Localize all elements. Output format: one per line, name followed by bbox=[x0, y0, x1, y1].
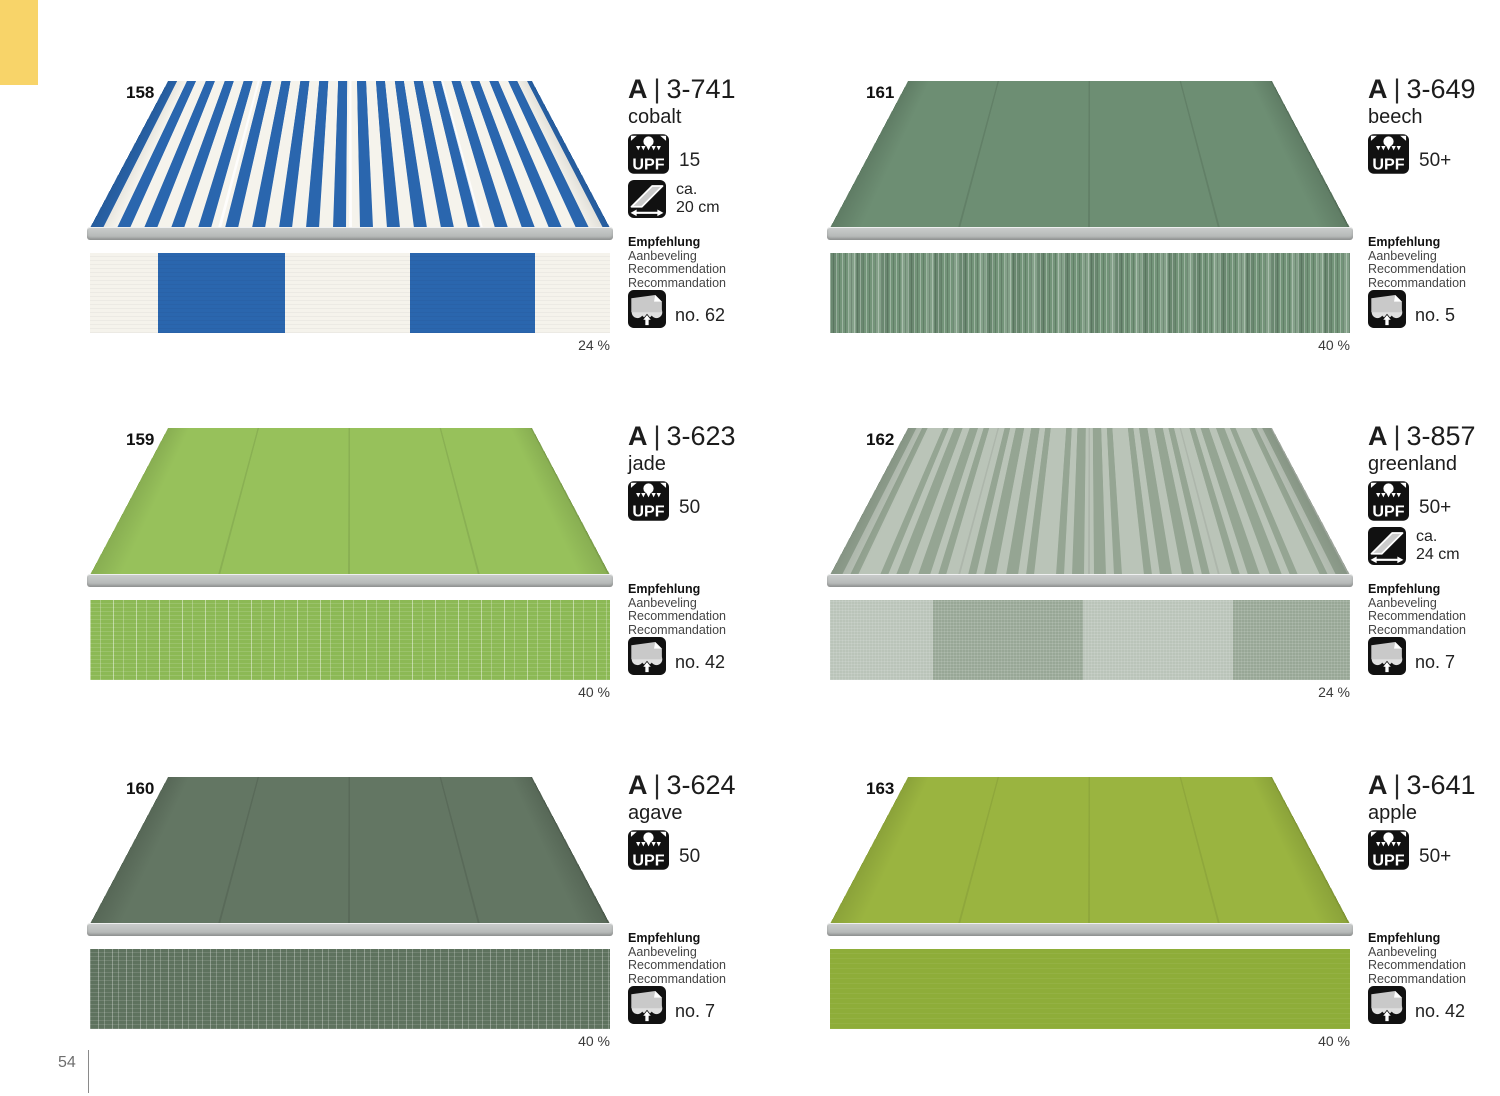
upf-sun-icon bbox=[628, 134, 669, 174]
fabric-swatch bbox=[90, 949, 610, 1029]
awning-recommendation-icon bbox=[628, 290, 666, 328]
code-separator: | bbox=[1394, 421, 1401, 451]
recommendation-line: Recommandation bbox=[628, 624, 726, 638]
color-name: agave bbox=[628, 802, 683, 825]
product-number: 158 bbox=[126, 83, 154, 103]
color-name: apple bbox=[1368, 802, 1417, 825]
awning-image bbox=[90, 80, 610, 228]
recommendation-line: Aanbeveling bbox=[628, 250, 726, 264]
recommendation-number: no. 62 bbox=[675, 305, 725, 326]
awning-image bbox=[90, 776, 610, 924]
code-prefix: A bbox=[628, 770, 648, 800]
recommendation-number: no. 42 bbox=[1415, 1001, 1465, 1022]
awning-recommendation-icon bbox=[628, 637, 666, 675]
upf-value: 15 bbox=[679, 150, 700, 172]
upf-value: 50 bbox=[679, 497, 700, 519]
width-approx-label: ca. bbox=[676, 181, 720, 199]
recommendation-line: Aanbeveling bbox=[1368, 250, 1466, 264]
product-card: 158 24 % A|3-741 cobalt 15 ca. 20 cm Emp… bbox=[90, 80, 790, 390]
code-prefix: A bbox=[1368, 770, 1388, 800]
code-prefix: A bbox=[1368, 421, 1388, 451]
awning-front-bar bbox=[87, 923, 613, 936]
valance-width-icon bbox=[628, 180, 666, 218]
recommendation-block: Empfehlung Aanbeveling Recommendation Re… bbox=[1368, 236, 1466, 290]
awning-front-bar bbox=[827, 227, 1353, 240]
code-prefix: A bbox=[628, 74, 648, 104]
product-code: A|3-857 bbox=[1368, 421, 1476, 451]
recommendation-heading: Empfehlung bbox=[628, 236, 726, 250]
product-number: 160 bbox=[126, 779, 154, 799]
code-separator: | bbox=[654, 770, 661, 800]
product-card: 159 40 % A|3-623 jade 50 Empfehlung Aanb… bbox=[90, 427, 790, 737]
awning-fabric bbox=[90, 428, 610, 575]
code-separator: | bbox=[654, 421, 661, 451]
code-prefix: A bbox=[1368, 74, 1388, 104]
recommendation-block: Empfehlung Aanbeveling Recommendation Re… bbox=[628, 932, 726, 986]
fabric-swatch bbox=[830, 949, 1350, 1029]
color-name: jade bbox=[628, 453, 666, 476]
awning-image bbox=[830, 776, 1350, 924]
page-number-divider bbox=[88, 1050, 89, 1093]
product-number: 162 bbox=[866, 430, 894, 450]
upf-sun-icon bbox=[628, 830, 669, 870]
share-label: 40 % bbox=[90, 684, 610, 700]
product-code: A|3-623 bbox=[628, 421, 736, 451]
product-info: A|3-857 greenland 50+ ca. 24 cm Empfehlu… bbox=[1368, 427, 1500, 727]
awning-fabric bbox=[830, 777, 1350, 924]
recommendation-line: Recommendation bbox=[1368, 959, 1466, 973]
product-code: A|3-649 bbox=[1368, 74, 1476, 104]
product-number: 163 bbox=[866, 779, 894, 799]
product-card: 163 40 % A|3-641 apple 50+ Empfehlung Aa… bbox=[830, 776, 1500, 1086]
recommendation-line: Recommandation bbox=[1368, 973, 1466, 987]
fabric-swatch bbox=[90, 600, 610, 680]
product-code: A|3-641 bbox=[1368, 770, 1476, 800]
recommendation-heading: Empfehlung bbox=[1368, 932, 1466, 946]
recommendation-line: Recommendation bbox=[628, 610, 726, 624]
product-info: A|3-624 agave 50 Empfehlung Aanbeveling … bbox=[628, 776, 783, 1076]
recommendation-line: Aanbeveling bbox=[628, 597, 726, 611]
product-code: A|3-624 bbox=[628, 770, 736, 800]
fabric-swatch bbox=[830, 600, 1350, 680]
awning-recommendation-icon bbox=[1368, 986, 1406, 1024]
color-name: cobalt bbox=[628, 106, 681, 129]
product-info: A|3-649 beech 50+ Empfehlung Aanbeveling… bbox=[1368, 80, 1500, 380]
product-number: 161 bbox=[866, 83, 894, 103]
awning-recommendation-icon bbox=[1368, 637, 1406, 675]
share-label: 24 % bbox=[90, 337, 610, 353]
recommendation-heading: Empfehlung bbox=[628, 583, 726, 597]
code-number: 3-641 bbox=[1407, 770, 1476, 800]
code-separator: | bbox=[654, 74, 661, 104]
share-label: 40 % bbox=[90, 1033, 610, 1049]
recommendation-number: no. 7 bbox=[1415, 652, 1455, 673]
product-card: 160 40 % A|3-624 agave 50 Empfehlung Aan… bbox=[90, 776, 790, 1086]
upf-value: 50 bbox=[679, 846, 700, 868]
catalog-page: 158 24 % A|3-741 cobalt 15 ca. 20 cm Emp… bbox=[0, 0, 1500, 1096]
recommendation-line: Aanbeveling bbox=[1368, 597, 1466, 611]
awning-recommendation-icon bbox=[1368, 290, 1406, 328]
awning-front-bar bbox=[827, 923, 1353, 936]
awning-image bbox=[830, 80, 1350, 228]
upf-sun-icon bbox=[628, 481, 669, 521]
color-name: beech bbox=[1368, 106, 1423, 129]
recommendation-block: Empfehlung Aanbeveling Recommendation Re… bbox=[628, 583, 726, 637]
fabric-swatch bbox=[90, 253, 610, 333]
awning-front-bar bbox=[87, 227, 613, 240]
recommendation-block: Empfehlung Aanbeveling Recommendation Re… bbox=[1368, 932, 1466, 986]
page-corner-accent bbox=[0, 0, 38, 85]
recommendation-heading: Empfehlung bbox=[1368, 236, 1466, 250]
recommendation-line: Recommandation bbox=[1368, 277, 1466, 291]
recommendation-line: Recommendation bbox=[1368, 610, 1466, 624]
page-number: 54 bbox=[58, 1054, 76, 1072]
recommendation-heading: Empfehlung bbox=[628, 932, 726, 946]
recommendation-line: Recommandation bbox=[1368, 624, 1466, 638]
product-info: A|3-741 cobalt 15 ca. 20 cm Empfehlung A… bbox=[628, 80, 783, 380]
product-info: A|3-641 apple 50+ Empfehlung Aanbeveling… bbox=[1368, 776, 1500, 1076]
recommendation-line: Recommandation bbox=[628, 973, 726, 987]
upf-sun-icon bbox=[1368, 481, 1409, 521]
recommendation-line: Recommendation bbox=[628, 263, 726, 277]
recommendation-line: Aanbeveling bbox=[1368, 946, 1466, 960]
code-separator: | bbox=[1394, 770, 1401, 800]
code-number: 3-624 bbox=[667, 770, 736, 800]
code-number: 3-623 bbox=[667, 421, 736, 451]
code-prefix: A bbox=[628, 421, 648, 451]
awning-front-bar bbox=[87, 574, 613, 587]
recommendation-line: Recommendation bbox=[1368, 263, 1466, 277]
code-number: 3-649 bbox=[1407, 74, 1476, 104]
fabric-swatch bbox=[830, 253, 1350, 333]
awning-fabric bbox=[830, 428, 1350, 575]
code-number: 3-741 bbox=[667, 74, 736, 104]
recommendation-line: Aanbeveling bbox=[628, 946, 726, 960]
color-name: greenland bbox=[1368, 453, 1457, 476]
width-value: 20 cm bbox=[676, 199, 720, 217]
code-separator: | bbox=[1394, 74, 1401, 104]
recommendation-block: Empfehlung Aanbeveling Recommendation Re… bbox=[1368, 583, 1466, 637]
width-approx-label: ca. bbox=[1416, 528, 1460, 546]
awning-recommendation-icon bbox=[628, 986, 666, 1024]
awning-fabric bbox=[830, 81, 1350, 228]
product-number: 159 bbox=[126, 430, 154, 450]
recommendation-line: Recommendation bbox=[628, 959, 726, 973]
valance-width-icon bbox=[1368, 527, 1406, 565]
awning-fabric bbox=[90, 777, 610, 924]
upf-value: 50+ bbox=[1419, 497, 1451, 519]
code-number: 3-857 bbox=[1407, 421, 1476, 451]
awning-image bbox=[90, 427, 610, 575]
recommendation-number: no. 42 bbox=[675, 652, 725, 673]
share-label: 40 % bbox=[830, 1033, 1350, 1049]
recommendation-line: Recommandation bbox=[628, 277, 726, 291]
upf-value: 50+ bbox=[1419, 150, 1451, 172]
awning-fabric bbox=[90, 81, 610, 228]
upf-sun-icon bbox=[1368, 830, 1409, 870]
awning-image bbox=[830, 427, 1350, 575]
share-label: 40 % bbox=[830, 337, 1350, 353]
width-value: 24 cm bbox=[1416, 546, 1460, 564]
recommendation-number: no. 5 bbox=[1415, 305, 1455, 326]
upf-sun-icon bbox=[1368, 134, 1409, 174]
recommendation-block: Empfehlung Aanbeveling Recommendation Re… bbox=[628, 236, 726, 290]
awning-front-bar bbox=[827, 574, 1353, 587]
upf-value: 50+ bbox=[1419, 846, 1451, 868]
product-card: 161 40 % A|3-649 beech 50+ Empfehlung Aa… bbox=[830, 80, 1500, 390]
recommendation-number: no. 7 bbox=[675, 1001, 715, 1022]
product-info: A|3-623 jade 50 Empfehlung Aanbeveling R… bbox=[628, 427, 783, 727]
recommendation-heading: Empfehlung bbox=[1368, 583, 1466, 597]
product-code: A|3-741 bbox=[628, 74, 736, 104]
product-card: 162 24 % A|3-857 greenland 50+ ca. 24 cm… bbox=[830, 427, 1500, 737]
share-label: 24 % bbox=[830, 684, 1350, 700]
